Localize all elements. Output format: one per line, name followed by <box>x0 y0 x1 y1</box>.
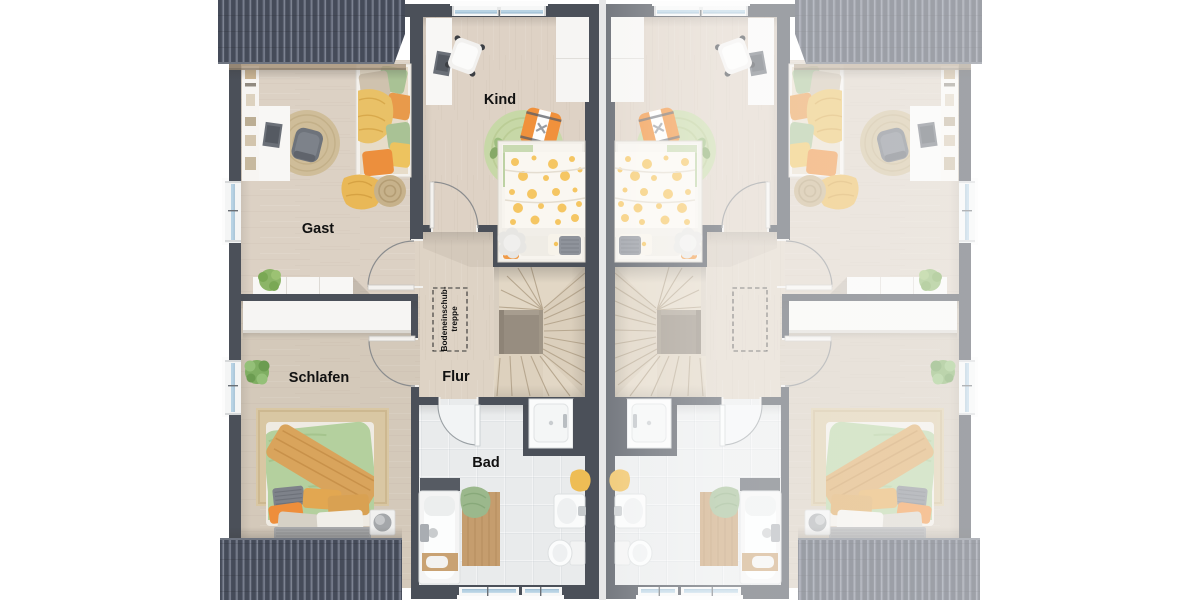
svg-text:Bodeneinschub-: Bodeneinschub- <box>439 286 449 351</box>
svg-text:Flur: Flur <box>442 369 470 385</box>
svg-text:Schlafen: Schlafen <box>289 370 349 386</box>
svg-text:treppe: treppe <box>449 306 459 332</box>
svg-text:Bad: Bad <box>472 455 499 471</box>
svg-text:Gast: Gast <box>302 221 334 237</box>
svg-text:Kind: Kind <box>484 92 516 108</box>
